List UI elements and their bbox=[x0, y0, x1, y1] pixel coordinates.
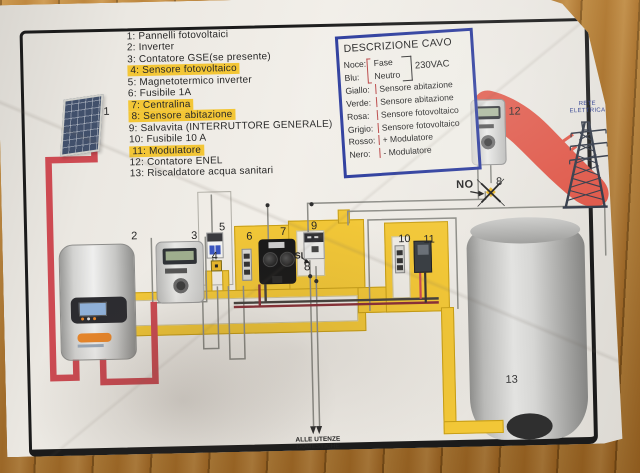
no-marker-number: 8 bbox=[496, 176, 502, 188]
load-arrows bbox=[310, 426, 322, 434]
si-marker-label: SI bbox=[295, 250, 304, 260]
centralina bbox=[258, 239, 296, 285]
centralina-knob bbox=[280, 252, 295, 267]
meter-display bbox=[163, 248, 197, 265]
label-inverter-breaker: 5 bbox=[219, 221, 225, 233]
si-marker-number: 8 bbox=[304, 259, 311, 273]
inverter bbox=[58, 243, 137, 361]
mains-bracket bbox=[401, 56, 413, 82]
water-heater bbox=[466, 216, 589, 441]
grid-caption: RETE ELETTRICA bbox=[563, 100, 611, 114]
inverter-brand-line bbox=[78, 344, 104, 348]
loads-caption: ALLE UTENZE DOMESTICHE bbox=[286, 435, 350, 450]
no-marker-label: NO bbox=[456, 179, 474, 191]
inverter-brand-badge bbox=[77, 333, 111, 343]
label-fuse-1a: 6 bbox=[246, 231, 252, 243]
label-salvavita: 9 bbox=[311, 220, 317, 232]
meter-port bbox=[481, 135, 495, 149]
label-panel: 1 bbox=[103, 106, 109, 118]
fuse-1a bbox=[242, 249, 253, 281]
label-inverter: 2 bbox=[131, 230, 137, 242]
centralina-knob bbox=[263, 252, 278, 267]
label-boiler: 13 bbox=[505, 374, 518, 386]
cable-description-box: DESCRIZIONE CAVO Noce:Fase Blu:Neutro Gi… bbox=[335, 28, 482, 179]
inverter-lcd bbox=[79, 302, 107, 317]
label-fuse-10a: 10 bbox=[398, 233, 411, 245]
boiler-feed-channel bbox=[444, 420, 504, 434]
photo-of-wiring-diagram: 1: Pannelli fotovoltaici 2: Inverter 3: … bbox=[0, 0, 640, 473]
label-pv-sensor: 4 bbox=[212, 250, 218, 262]
label-centralina: 7 bbox=[280, 226, 286, 238]
fuse-10a bbox=[395, 245, 406, 273]
label-gse-meter: 3 bbox=[191, 230, 197, 242]
label-modulatore: 11 bbox=[423, 233, 435, 245]
gse-meter bbox=[155, 241, 204, 304]
legend: 1: Pannelli fotovoltaici 2: Inverter 3: … bbox=[127, 27, 334, 180]
voltage-label: 230VAC bbox=[415, 58, 450, 71]
meter-port bbox=[173, 278, 188, 293]
water-heater-cap bbox=[506, 413, 553, 440]
label-enel-meter: 12 bbox=[508, 105, 521, 117]
diagram-paper: 1: Pannelli fotovoltaici 2: Inverter 3: … bbox=[0, 0, 635, 457]
salvavita-breaker bbox=[303, 232, 325, 259]
inverter-display-panel bbox=[71, 296, 128, 323]
boiler-feed-channel bbox=[441, 307, 457, 429]
solar-panel bbox=[60, 94, 103, 157]
